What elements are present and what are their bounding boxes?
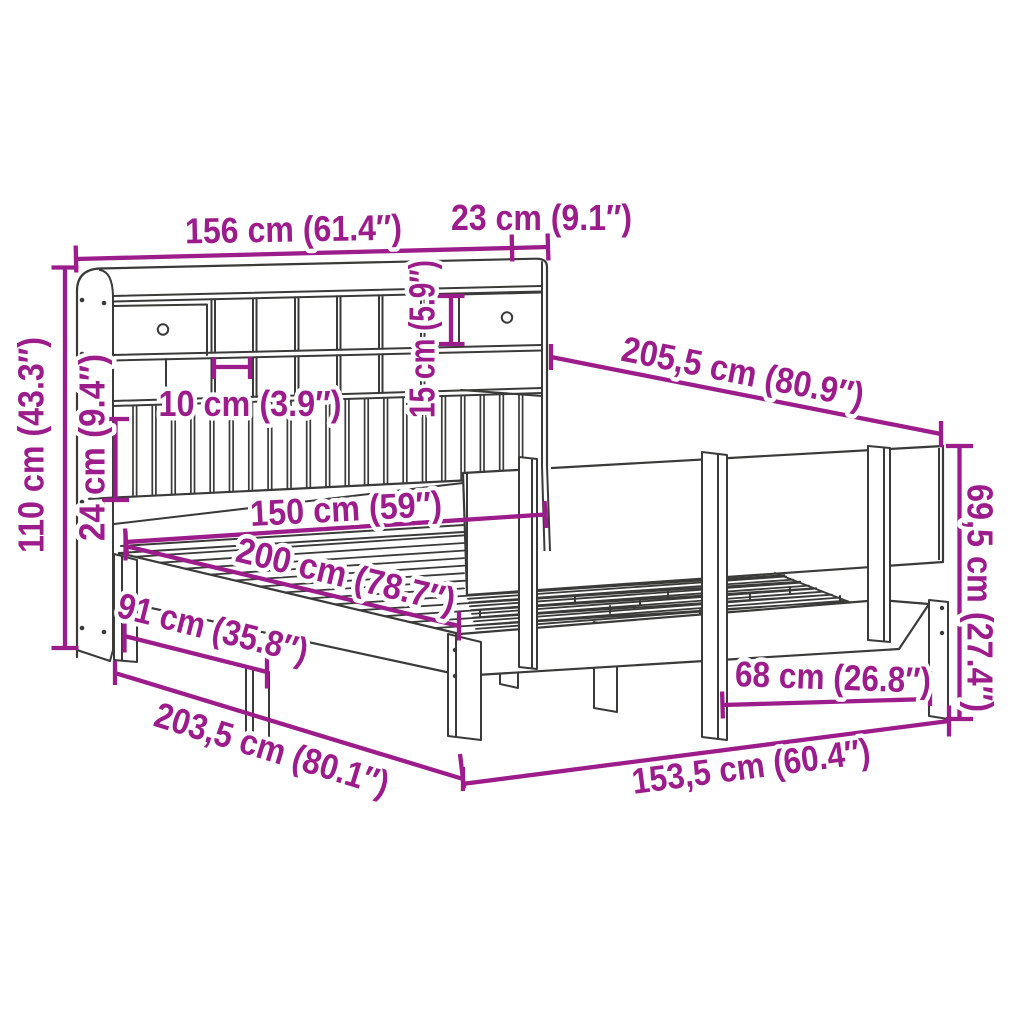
svg-text:23 cm (9.1″): 23 cm (9.1″) <box>451 197 632 238</box>
svg-text:24 cm (9.4″): 24 cm (9.4″) <box>72 354 113 541</box>
svg-text:68 cm (26.8″): 68 cm (26.8″) <box>734 653 931 701</box>
svg-text:15 cm (5.9″): 15 cm (5.9″) <box>402 260 443 418</box>
svg-text:156 cm (61.4″): 156 cm (61.4″) <box>185 207 403 252</box>
svg-text:69,5 cm (27.4″): 69,5 cm (27.4″) <box>960 484 1001 712</box>
svg-text:110 cm (43.3″): 110 cm (43.3″) <box>11 337 52 553</box>
svg-text:10 cm (3.9″): 10 cm (3.9″) <box>159 383 342 424</box>
